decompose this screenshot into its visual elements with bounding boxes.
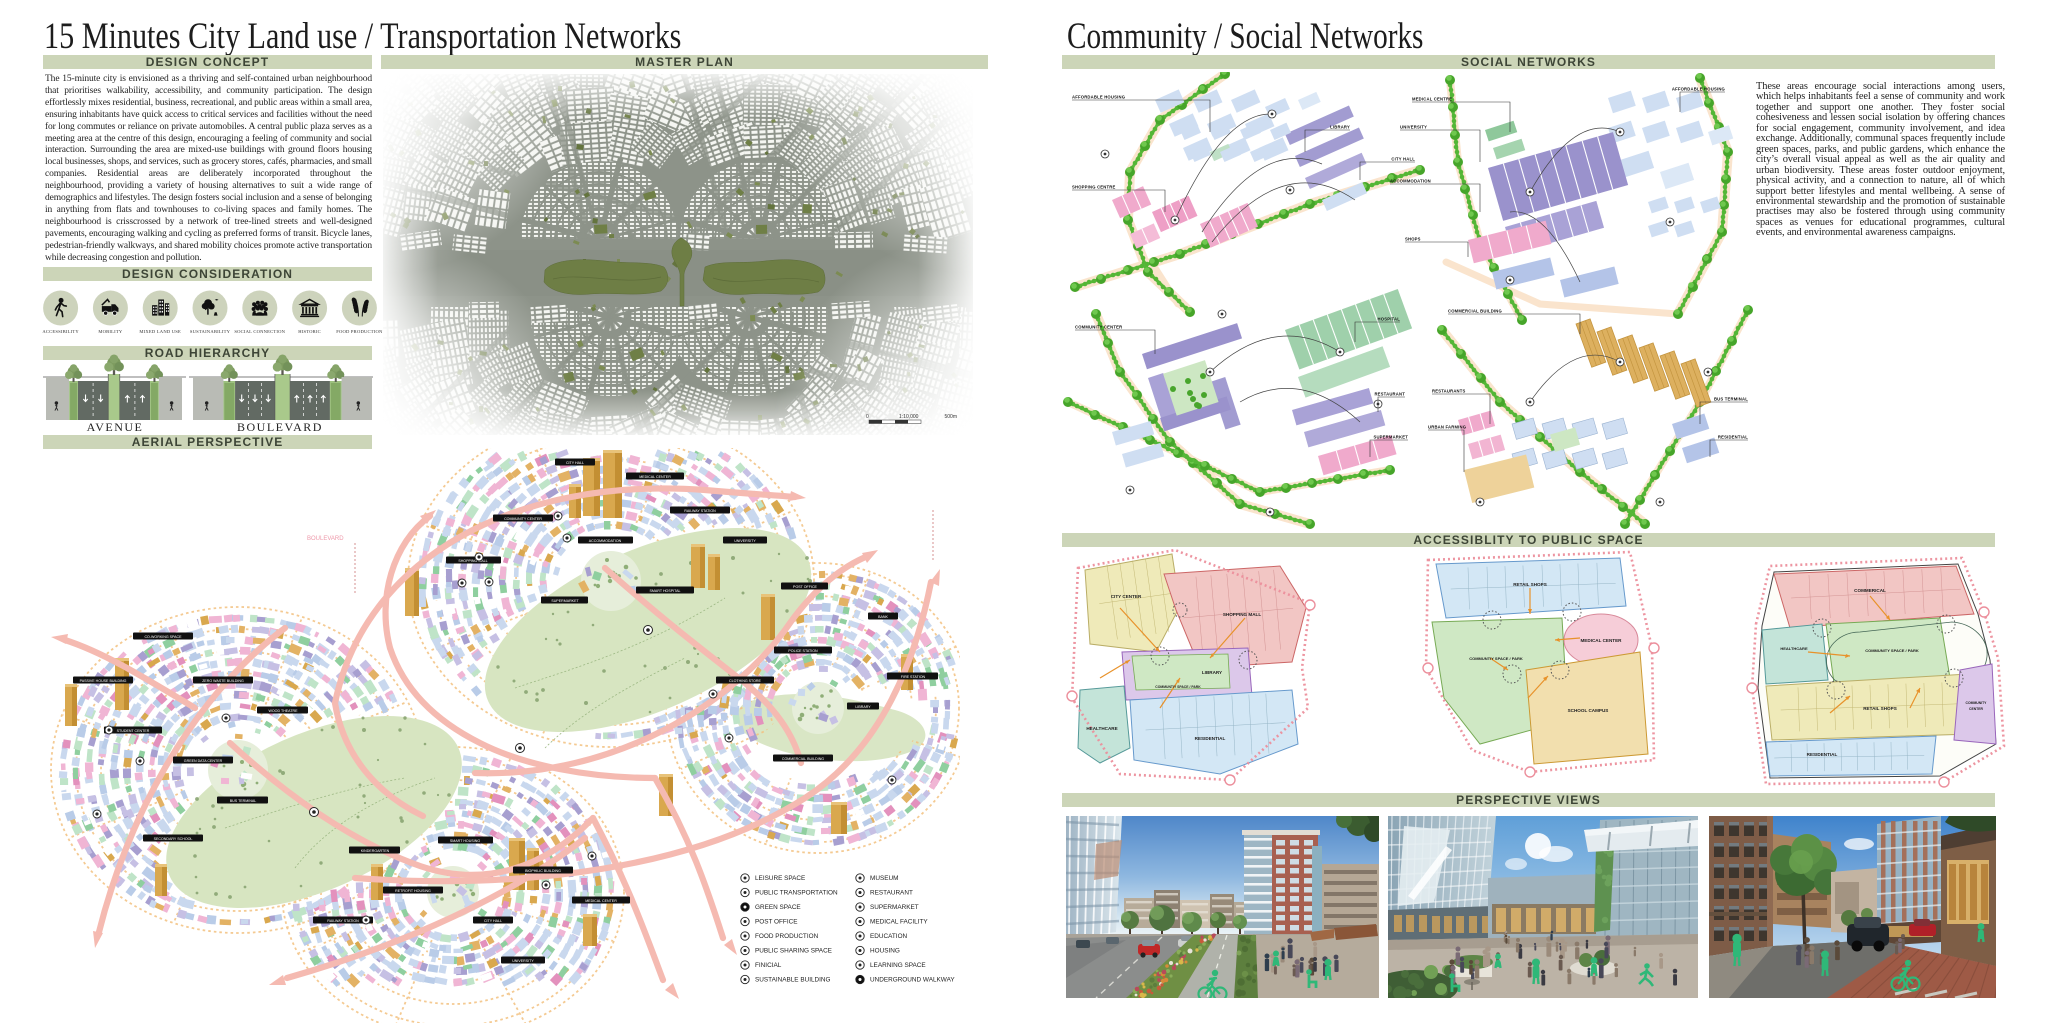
- svg-text:HISTORIC: HISTORIC: [298, 329, 321, 334]
- svg-text:AVENUE: AVENUE: [87, 420, 144, 434]
- svg-text:RAILWAY STATION: RAILWAY STATION: [684, 509, 716, 513]
- svg-text:SECONDARY SCHOOL: SECONDARY SCHOOL: [154, 837, 193, 841]
- svg-text:FINICIAL: FINICIAL: [755, 962, 782, 969]
- svg-text:GREEN SPACE: GREEN SPACE: [755, 904, 801, 911]
- svg-text:COMMUNITY CENTER: COMMUNITY CENTER: [1075, 325, 1122, 330]
- svg-text:RETAIL SHOPS: RETAIL SHOPS: [1863, 706, 1897, 711]
- svg-text:RETAIL SHOPS: RETAIL SHOPS: [1513, 582, 1547, 587]
- svg-text:CENTER: CENTER: [1969, 707, 1983, 711]
- svg-text:RESTAURANT: RESTAURANT: [1374, 392, 1405, 397]
- svg-text:SUPERMARKET: SUPERMARKET: [870, 904, 919, 911]
- svg-text:POST OFFICE: POST OFFICE: [793, 585, 817, 589]
- svg-text:LIBRARY: LIBRARY: [1202, 670, 1222, 675]
- svg-text:COMMUNTIY SPACE / PARK: COMMUNTIY SPACE / PARK: [1469, 656, 1523, 661]
- svg-text:GREEN DATA CENTER: GREEN DATA CENTER: [184, 759, 223, 763]
- svg-text:STUDENT CENTER: STUDENT CENTER: [117, 729, 150, 733]
- svg-text:1:10,000: 1:10,000: [899, 414, 919, 420]
- svg-text:MIXED LAND USE: MIXED LAND USE: [139, 329, 181, 334]
- svg-text:POLICE STATION: POLICE STATION: [788, 649, 818, 653]
- svg-text:COMMUNTIY SPACE / PARK: COMMUNTIY SPACE / PARK: [1155, 685, 1201, 689]
- svg-text:RESTAURANT: RESTAURANT: [870, 890, 913, 897]
- svg-text:LIBRARY: LIBRARY: [1330, 125, 1350, 130]
- svg-text:SHOPPING MALL: SHOPPING MALL: [458, 559, 487, 563]
- svg-text:SUPERMARKET: SUPERMARKET: [551, 599, 579, 603]
- svg-text:RESIDENTIAL: RESIDENTIAL: [1718, 435, 1748, 440]
- svg-text:CITY HALL: CITY HALL: [1391, 157, 1415, 162]
- svg-text:SHOPS: SHOPS: [1405, 237, 1421, 242]
- svg-text:CO-WORKING SPACE: CO-WORKING SPACE: [144, 635, 182, 639]
- svg-text:SCHOOL CAMPUS: SCHOOL CAMPUS: [1568, 708, 1609, 713]
- svg-text:UNIVERSITY: UNIVERSITY: [734, 539, 756, 543]
- svg-text:FOOD PRODUCTION: FOOD PRODUCTION: [336, 329, 383, 334]
- svg-text:PASSIVE HOUSE BUILDING: PASSIVE HOUSE BUILDING: [80, 679, 127, 683]
- svg-text:ACCOMMODATION: ACCOMMODATION: [589, 539, 622, 543]
- svg-text:MEDICAL FACILITY: MEDICAL FACILITY: [870, 919, 928, 926]
- svg-text:AFFORDABLE HOUSING: AFFORDABLE HOUSING: [1672, 87, 1725, 92]
- svg-text:SUSTAINABLE BUILDING: SUSTAINABLE BUILDING: [755, 977, 831, 984]
- svg-text:UNIVERSITY: UNIVERSITY: [1400, 125, 1427, 130]
- svg-text:0: 0: [866, 414, 869, 420]
- svg-text:UNDERGROUND WALKWAY: UNDERGROUND WALKWAY: [870, 977, 955, 984]
- svg-text:ACCOMMODATION: ACCOMMODATION: [1390, 179, 1431, 184]
- svg-text:BOULEVARD: BOULEVARD: [237, 420, 323, 434]
- svg-text:COMMERCIAL BUILDING: COMMERCIAL BUILDING: [1448, 309, 1502, 314]
- svg-text:HEALTHCARE: HEALTHCARE: [1086, 726, 1117, 731]
- svg-text:BIOPHILIC BUILDING: BIOPHILIC BUILDING: [525, 869, 561, 873]
- svg-text:KINDERGARTEN: KINDERGARTEN: [361, 849, 390, 853]
- svg-text:ZERO WASTE BUILDING: ZERO WASTE BUILDING: [202, 679, 244, 683]
- svg-text:SUPERMARKET: SUPERMARKET: [1373, 435, 1408, 440]
- svg-text:SMART HOUSING: SMART HOUSING: [450, 839, 480, 843]
- svg-text:EDUCATION: EDUCATION: [870, 933, 908, 940]
- svg-text:RAILWAY STATION: RAILWAY STATION: [327, 919, 359, 923]
- svg-text:SHOPPING CENTRE: SHOPPING CENTRE: [1072, 185, 1116, 190]
- svg-text:MOBILITY: MOBILITY: [98, 329, 123, 334]
- svg-text:CITY HALL: CITY HALL: [566, 461, 584, 465]
- svg-text:CLOTHING STORE: CLOTHING STORE: [729, 679, 761, 683]
- svg-text:CITY HALL: CITY HALL: [484, 919, 502, 923]
- svg-text:FIRE STATION: FIRE STATION: [901, 675, 926, 679]
- svg-text:MEDICAL CENTRE: MEDICAL CENTRE: [1412, 97, 1452, 102]
- svg-text:AFFORDABLE HOUSING: AFFORDABLE HOUSING: [1072, 95, 1125, 100]
- svg-text:BOULEVARD: BOULEVARD: [307, 536, 344, 542]
- svg-text:FOOD PRODUCTION: FOOD PRODUCTION: [755, 933, 819, 940]
- svg-text:MUSEUM: MUSEUM: [870, 875, 898, 882]
- svg-text:COMMERCIAL BUILDING: COMMERCIAL BUILDING: [782, 757, 824, 761]
- svg-text:UNIVERSITY: UNIVERSITY: [512, 959, 534, 963]
- svg-text:MEDICAL CENTER: MEDICAL CENTER: [1580, 638, 1622, 643]
- svg-text:PUBLIC TRANSPORTATION: PUBLIC TRANSPORTATION: [755, 890, 838, 897]
- svg-text:BANK: BANK: [878, 615, 888, 619]
- svg-text:SOCIAL CONNECTION: SOCIAL CONNECTION: [234, 329, 285, 334]
- svg-text:SUSTAINABILITY: SUSTAINABILITY: [190, 329, 231, 334]
- svg-text:URBAN FARMING: URBAN FARMING: [1428, 425, 1466, 430]
- svg-text:MEDICAL CENTER: MEDICAL CENTER: [639, 475, 671, 479]
- svg-text:BUS TERMINAL: BUS TERMINAL: [1714, 397, 1748, 402]
- svg-text:RESIDENTIAL: RESIDENTIAL: [1807, 752, 1838, 757]
- svg-text:RESTAURANTS: RESTAURANTS: [1432, 389, 1466, 394]
- svg-text:SHOPPING MALL: SHOPPING MALL: [1223, 612, 1261, 617]
- svg-text:HEALTHCARE: HEALTHCARE: [1780, 646, 1808, 651]
- svg-text:COMMUNITY CENTER: COMMUNITY CENTER: [504, 517, 542, 521]
- svg-text:RETROFIT HOUSING: RETROFIT HOUSING: [395, 889, 431, 893]
- svg-text:LEISURE SPACE: LEISURE SPACE: [755, 875, 805, 882]
- svg-text:RESIDENTIAL: RESIDENTIAL: [1195, 736, 1226, 741]
- svg-text:CITY CENTER: CITY CENTER: [1111, 594, 1142, 599]
- svg-text:POST OFFICE: POST OFFICE: [755, 919, 798, 926]
- svg-text:HOUSING: HOUSING: [870, 948, 900, 955]
- svg-text:COMMERICAL: COMMERICAL: [1854, 588, 1886, 593]
- svg-text:COMMUNITY: COMMUNITY: [1966, 701, 1988, 705]
- svg-text:HOSPITAL: HOSPITAL: [1378, 317, 1401, 322]
- svg-text:BUS TERMINAL: BUS TERMINAL: [230, 799, 257, 803]
- svg-text:LIBRARY: LIBRARY: [855, 705, 871, 709]
- svg-text:PUBLIC SHARING SPACE: PUBLIC SHARING SPACE: [755, 948, 832, 955]
- svg-text:COMMUNITY SPACE / PARK: COMMUNITY SPACE / PARK: [1865, 648, 1919, 653]
- svg-text:ACCESSIBILITY: ACCESSIBILITY: [42, 329, 79, 334]
- svg-text:LEARNING SPACE: LEARNING SPACE: [870, 962, 926, 969]
- svg-text:WOOD THEATRE: WOOD THEATRE: [268, 709, 298, 713]
- svg-text:SMART HOSPITAL: SMART HOSPITAL: [650, 589, 681, 593]
- svg-text:500m: 500m: [944, 414, 957, 420]
- svg-text:MEDICAL CENTER: MEDICAL CENTER: [585, 899, 617, 903]
